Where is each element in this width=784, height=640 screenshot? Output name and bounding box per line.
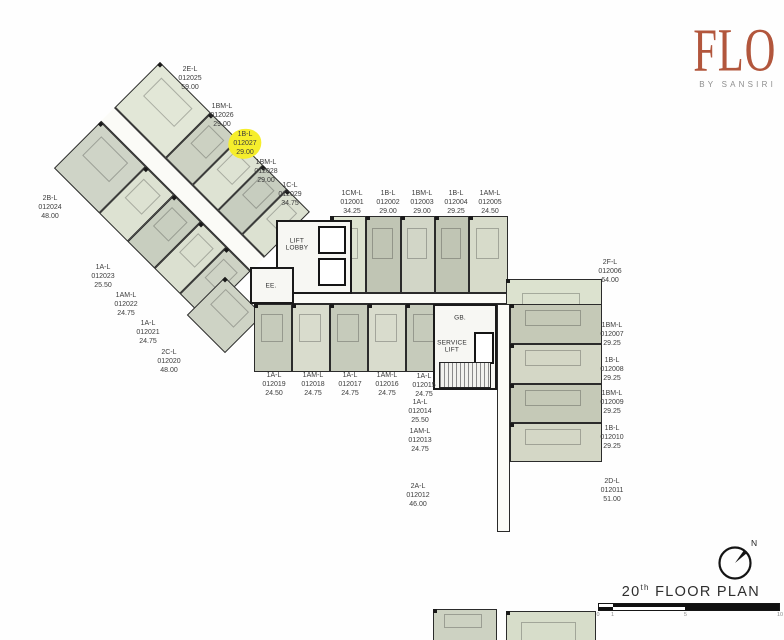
- unit-label-line: 29.25: [444, 207, 467, 216]
- east-wing-row: [510, 304, 602, 462]
- floor-plan-label: FLOOR PLAN: [655, 584, 760, 600]
- logo-text: FLO: [693, 22, 776, 80]
- unit-block: [368, 304, 406, 372]
- center-wing-upper-row: [330, 216, 508, 293]
- unit-label-line: 24.75: [375, 389, 398, 398]
- unit-label-line: 2B-L: [38, 195, 61, 204]
- unit-label-012012[interactable]: 2A-L01201246.00: [406, 483, 429, 509]
- compass-needle: [735, 550, 747, 564]
- unit-label-012008[interactable]: 1B-L01200829.25: [600, 357, 623, 383]
- unit-label-012018[interactable]: 1AM-L01201824.75: [301, 372, 324, 398]
- unit-label-line: 24.50: [262, 389, 285, 398]
- unit-block-012014: [433, 609, 497, 640]
- service-lift-shaft: [474, 332, 494, 364]
- unit-label-012029[interactable]: 1C-L01202934.75: [278, 182, 301, 208]
- unit-label-line: 012009: [600, 399, 623, 408]
- unit-label-line: 012005: [478, 199, 501, 208]
- floor-plan-drawing: LIFT LOBBY EE. GB. SERVICE LIFT 1CM-L012…: [0, 0, 784, 361]
- unit-label-012027-highlighted[interactable]: 1B-L01202729.00: [228, 129, 261, 159]
- unit-block: [330, 304, 368, 372]
- unit-label-012001[interactable]: 1CM-L01200134.25: [340, 190, 363, 216]
- unit-label-line: 1AM-L: [114, 292, 137, 301]
- unit-label-line: 012018: [301, 381, 324, 390]
- unit-label-line: 1BM-L: [210, 103, 233, 112]
- unit-label-line: 1AM-L: [375, 372, 398, 381]
- unit-block: [510, 423, 602, 462]
- unit-label-line: 012027: [233, 140, 256, 149]
- unit-label-012025[interactable]: 2E-L01202559.00: [178, 66, 201, 92]
- unit-label-line: 1AM-L: [478, 190, 501, 199]
- scale-tick-1: 1: [611, 612, 614, 618]
- unit-label-line: 29.00: [233, 148, 256, 157]
- unit-block: [510, 304, 602, 344]
- compass-icon: N: [710, 536, 764, 586]
- unit-label-line: 29.00: [376, 207, 399, 216]
- unit-block: [292, 304, 330, 372]
- unit-label-line: 012017: [338, 381, 361, 390]
- unit-label-line: 1B-L: [600, 425, 623, 434]
- unit-label-line: 012029: [278, 191, 301, 200]
- unit-label-line: 012021: [136, 329, 159, 338]
- unit-block: [435, 216, 469, 293]
- unit-label-line: 1AM-L: [301, 372, 324, 381]
- unit-label-012011[interactable]: 2D-L01201151.00: [601, 478, 624, 504]
- floor-plan-title: 20th FLOOR PLAN: [622, 583, 760, 600]
- unit-label-line: 2A-L: [406, 483, 429, 492]
- unit-label-line: 1C-L: [278, 182, 301, 191]
- unit-label-line: 012025: [178, 75, 201, 84]
- unit-label-line: 24.50: [478, 207, 501, 216]
- unit-label-012010[interactable]: 1B-L01201029.25: [600, 425, 623, 451]
- brand-logo: FLO BY SANSIRI: [675, 22, 776, 89]
- unit-label-line: 64.00: [598, 276, 621, 285]
- unit-label-line: 2D-L: [601, 478, 624, 487]
- unit-label-012006[interactable]: 2F-L01200664.00: [598, 259, 621, 285]
- unit-label-line: 34.75: [278, 199, 301, 208]
- scale-bar-ticks: 01510: [598, 611, 780, 620]
- unit-label-line: 51.00: [601, 495, 624, 504]
- unit-label-line: 012011: [601, 487, 624, 496]
- unit-label-line: 1A-L: [338, 372, 361, 381]
- unit-label-012026[interactable]: 1BM-L01202629.00: [210, 103, 233, 129]
- unit-label-line: 24.75: [412, 390, 435, 399]
- unit-label-012021[interactable]: 1A-L01202124.75: [136, 320, 159, 346]
- unit-label-line: 012022: [114, 301, 137, 310]
- unit-label-line: 1AM-L: [408, 428, 431, 437]
- unit-label-012022[interactable]: 1AM-L01202224.75: [114, 292, 137, 318]
- stairs: [439, 362, 491, 388]
- unit-label-line: 24.75: [136, 337, 159, 346]
- unit-label-012028[interactable]: 1BM-L01202829.00: [254, 159, 277, 185]
- unit-label-012020[interactable]: 2C-L01202048.00: [157, 349, 180, 375]
- unit-block: [510, 384, 602, 423]
- unit-label-line: 012016: [375, 381, 398, 390]
- unit-label-line: 29.00: [410, 207, 433, 216]
- unit-label-012005[interactable]: 1AM-L01200524.50: [478, 190, 501, 216]
- unit-label-line: 25.50: [91, 281, 114, 290]
- scale-tick-10: 10: [777, 612, 783, 618]
- unit-label-012003[interactable]: 1BM-L01200329.00: [410, 190, 433, 216]
- unit-label-line: 1A-L: [91, 264, 114, 273]
- unit-label-line: 012023: [91, 273, 114, 282]
- unit-label-line: 012014: [408, 408, 431, 417]
- unit-label-012019[interactable]: 1A-L01201924.50: [262, 372, 285, 398]
- unit-label-line: 012028: [254, 168, 277, 177]
- unit-label-line: 2E-L: [178, 66, 201, 75]
- unit-label-012009[interactable]: 1BM-L01200929.25: [600, 390, 623, 416]
- unit-label-line: 012006: [598, 268, 621, 277]
- center-wing-lower-row: [254, 304, 444, 372]
- unit-label-line: 2F-L: [598, 259, 621, 268]
- unit-label-line: 012026: [210, 112, 233, 121]
- unit-label-line: 29.00: [210, 120, 233, 129]
- gb-label: GB.: [454, 314, 466, 321]
- unit-label-line: 012019: [262, 381, 285, 390]
- unit-label-012023[interactable]: 1A-L01202325.50: [91, 264, 114, 290]
- unit-label-line: 1A-L: [412, 373, 435, 382]
- unit-label-line: 012024: [38, 204, 61, 213]
- scale-tick-0: 0: [596, 612, 599, 618]
- unit-label-012017[interactable]: 1A-L01201724.75: [338, 372, 361, 398]
- unit-label-line: 1B-L: [444, 190, 467, 199]
- lift-shaft: [318, 226, 346, 254]
- unit-label-line: 1B-L: [376, 190, 399, 199]
- compass-north-label: N: [751, 538, 757, 548]
- unit-label-line: 012004: [444, 199, 467, 208]
- unit-label-line: 012020: [157, 358, 180, 367]
- unit-label-line: 48.00: [157, 366, 180, 375]
- unit-label-line: 48.00: [38, 212, 61, 221]
- unit-label-012016[interactable]: 1AM-L01201624.75: [375, 372, 398, 398]
- unit-label-line: 1BM-L: [410, 190, 433, 199]
- unit-label-line: 29.25: [600, 339, 623, 348]
- unit-label-line: 1BM-L: [600, 322, 623, 331]
- unit-block: [401, 216, 435, 293]
- unit-label-line: 1A-L: [262, 372, 285, 381]
- unit-label-012002[interactable]: 1B-L01200229.00: [376, 190, 399, 216]
- unit-block: [254, 304, 292, 372]
- unit-label-line: 29.25: [600, 374, 623, 383]
- lift-shaft: [318, 258, 346, 286]
- unit-label-012015[interactable]: 1A-L01201524.75: [412, 373, 435, 399]
- unit-label-012013[interactable]: 1AM-L01201324.75: [408, 428, 431, 454]
- service-lift-label: SERVICE LIFT: [437, 340, 467, 355]
- unit-block: [469, 216, 508, 293]
- unit-label-line: 1B-L: [233, 131, 256, 140]
- unit-label-line: 012012: [406, 492, 429, 501]
- unit-label-line: 29.25: [600, 442, 623, 451]
- unit-label-line: 1CM-L: [340, 190, 363, 199]
- unit-label-line: 012001: [340, 199, 363, 208]
- unit-label-012014[interactable]: 1A-L01201425.50: [408, 399, 431, 425]
- unit-label-line: 24.75: [114, 309, 137, 318]
- unit-label-line: 012010: [600, 434, 623, 443]
- unit-label-line: 012008: [600, 366, 623, 375]
- unit-label-012024[interactable]: 2B-L01202448.00: [38, 195, 61, 221]
- unit-label-line: 1A-L: [136, 320, 159, 329]
- unit-label-line: 012013: [408, 437, 431, 446]
- unit-label-line: 2C-L: [157, 349, 180, 358]
- scale-tick-5: 5: [684, 612, 687, 618]
- unit-label-012004[interactable]: 1B-L01200429.25: [444, 190, 467, 216]
- unit-label-line: 24.75: [408, 445, 431, 454]
- scale-bar-graphic: [598, 603, 780, 611]
- unit-label-line: 012002: [376, 199, 399, 208]
- unit-label-line: 1BM-L: [600, 390, 623, 399]
- unit-label-line: 29.00: [254, 176, 277, 185]
- unit-label-line: 24.75: [301, 389, 324, 398]
- ee-label: EE.: [265, 282, 276, 289]
- unit-label-line: 46.00: [406, 500, 429, 509]
- unit-block: [510, 344, 602, 384]
- unit-label-line: 25.50: [408, 416, 431, 425]
- unit-label-line: 59.00: [178, 83, 201, 92]
- title-block: N 20th FLOOR PLAN 01510: [524, 540, 784, 640]
- unit-label-line: 012015: [412, 382, 435, 391]
- unit-label-line: 34.25: [340, 207, 363, 216]
- unit-label-line: 1B-L: [600, 357, 623, 366]
- floor-plan-page: LIFT LOBBY EE. GB. SERVICE LIFT 1CM-L012…: [0, 0, 784, 640]
- floor-number: 20: [622, 584, 641, 600]
- unit-block: [366, 216, 401, 293]
- scale-bar: 01510: [598, 603, 780, 620]
- unit-label-line: 012003: [410, 199, 433, 208]
- unit-label-line: 29.25: [600, 407, 623, 416]
- unit-label-line: 1BM-L: [254, 159, 277, 168]
- unit-label-line: 012007: [600, 331, 623, 340]
- floor-suffix: th: [641, 583, 650, 592]
- unit-label-012007[interactable]: 1BM-L01200729.25: [600, 322, 623, 348]
- unit-label-line: 24.75: [338, 389, 361, 398]
- east-corridor: [497, 304, 510, 532]
- lift-lobby-label: LIFT LOBBY: [286, 238, 309, 253]
- unit-label-line: 1A-L: [408, 399, 431, 408]
